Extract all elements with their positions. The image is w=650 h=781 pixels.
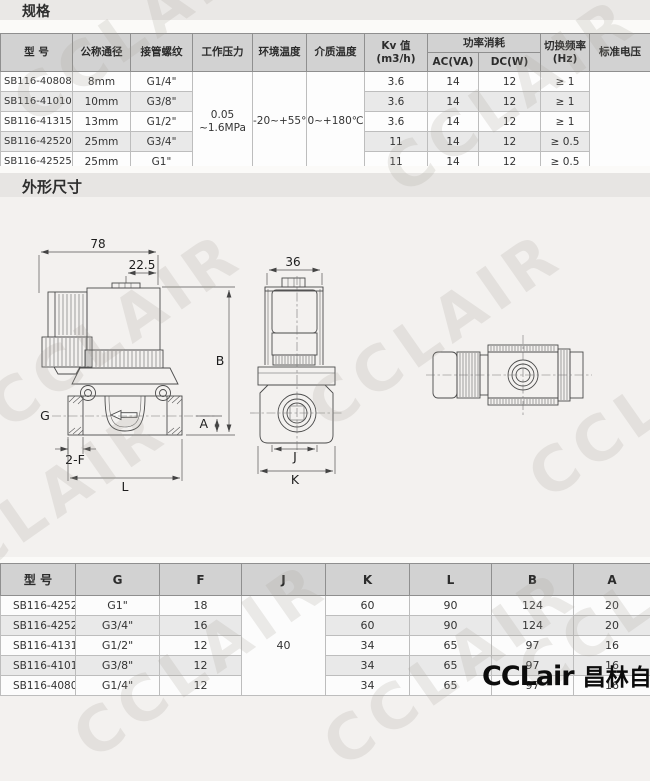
cell-kv: 3.6 (365, 92, 428, 112)
cell-diameter: 25mm (73, 132, 131, 152)
dimension-drawing: 78 22.5 B A G 2-F L (0, 197, 650, 557)
cell-model: SB116-42520 (1, 616, 76, 636)
pressure-value-line2: ~1.6MPa (193, 122, 252, 134)
cell-G: G1" (76, 596, 160, 616)
dim-label-J: J (292, 449, 297, 464)
cell-thread: G1/4" (131, 72, 193, 92)
cell-J-merged: 40 (242, 596, 326, 696)
cell-freq: ≥ 1 (541, 112, 590, 132)
cell-media-temp: 0~+180℃ (307, 72, 365, 172)
cell-K: 60 (326, 596, 410, 616)
top-view-drawing (426, 335, 592, 417)
cell-A: 16 (574, 636, 650, 656)
brand-logo-cjk: 昌林自动化 (583, 665, 650, 691)
dim-label-K: K (291, 472, 300, 487)
col-header-media-temp: 介质温度 (307, 34, 365, 72)
cell-model: SB116-42525 (1, 596, 76, 616)
section-title-specs: 规格 (22, 1, 50, 21)
cell-ambient-temp: -20~+55℃ (253, 72, 307, 172)
cell-model: SB116-41010 (1, 92, 73, 112)
cell-F: 18 (160, 596, 242, 616)
cell-kv: 3.6 (365, 112, 428, 132)
side-view-drawing (42, 283, 215, 435)
col-header-K: K (326, 564, 410, 596)
col-header-A: A (574, 564, 650, 596)
kv-label: Kv 值 (365, 40, 427, 52)
col-header-thread: 接管螺纹 (131, 34, 193, 72)
col-header-ambient-temp: 环境温度 (253, 34, 307, 72)
col-header-frequency: 切换频率 (Hz) (541, 34, 590, 72)
dim-label-36: 36 (285, 255, 300, 269)
cell-ac: 14 (428, 132, 479, 152)
cell-diameter: 13mm (73, 112, 131, 132)
col-header-pressure: 工作压力 (193, 34, 253, 72)
cell-dc: 12 (479, 112, 541, 132)
col-header-model: 型 号 (1, 34, 73, 72)
divider (0, 20, 650, 33)
cell-model: SB116-40808 (1, 676, 76, 696)
cell-model: SB116-40808 (1, 72, 73, 92)
table-row: SB116-42525 G1" 18 40 60 90 124 20 (1, 596, 650, 616)
col-header-voltage: 标准电压 (590, 34, 650, 72)
cell-ac: 14 (428, 72, 479, 92)
cell-G: G1/2" (76, 636, 160, 656)
col-header-B: B (492, 564, 574, 596)
col-header-power: 功率消耗 (428, 34, 541, 53)
pressure-value-line1: 0.05 (193, 109, 252, 121)
cell-A: 20 (574, 596, 650, 616)
cell-kv: 11 (365, 132, 428, 152)
cell-A: 20 (574, 616, 650, 636)
col-header-ac: AC(VA) (428, 53, 479, 72)
cell-K: 34 (326, 656, 410, 676)
cell-dc: 12 (479, 72, 541, 92)
cell-L: 90 (410, 596, 492, 616)
cell-diameter: 8mm (73, 72, 131, 92)
cell-pressure: 0.05 ~1.6MPa (193, 72, 253, 172)
cell-B: 97 (492, 636, 574, 656)
col-header-model: 型 号 (1, 564, 76, 596)
brand-logo-latin: CCLair (482, 661, 574, 692)
cell-K: 60 (326, 616, 410, 636)
cell-G: G1/4" (76, 676, 160, 696)
cell-dc: 12 (479, 92, 541, 112)
col-header-dc: DC(W) (479, 53, 541, 72)
dim-label-A: A (199, 416, 208, 431)
col-header-J: J (242, 564, 326, 596)
cell-B: 124 (492, 596, 574, 616)
cell-G: G3/8" (76, 656, 160, 676)
cell-ac: 14 (428, 92, 479, 112)
cell-K: 34 (326, 636, 410, 656)
cell-dc: 12 (479, 132, 541, 152)
col-header-kv: Kv 值 (m3/h) (365, 34, 428, 72)
cell-voltage-empty (590, 72, 650, 172)
freq-unit: (Hz) (541, 53, 589, 65)
cell-diameter: 10mm (73, 92, 131, 112)
cell-L: 90 (410, 616, 492, 636)
dim-label-L: L (122, 479, 129, 494)
divider (0, 166, 650, 173)
section-title-dimensions: 外形尺寸 (22, 176, 82, 197)
table-row: SB116-41315 G1/2" 12 34 65 97 16 (1, 636, 650, 656)
cell-B: 124 (492, 616, 574, 636)
cell-thread: G3/4" (131, 132, 193, 152)
dim-label-22-5: 22.5 (129, 258, 156, 272)
cell-model: SB116-42520 (1, 132, 73, 152)
cell-L: 65 (410, 656, 492, 676)
cell-kv: 3.6 (365, 72, 428, 92)
cell-thread: G1/2" (131, 112, 193, 132)
dim-label-78: 78 (90, 237, 105, 251)
cell-K: 34 (326, 676, 410, 696)
col-header-L: L (410, 564, 492, 596)
section-bar-specs: 规格 (0, 0, 650, 20)
cell-freq: ≥ 1 (541, 72, 590, 92)
col-header-G: G (76, 564, 160, 596)
col-header-F: F (160, 564, 242, 596)
cell-freq: ≥ 0.5 (541, 132, 590, 152)
table-row: SB116-42520 G3/4" 16 60 90 124 20 (1, 616, 650, 636)
cell-F: 12 (160, 676, 242, 696)
kv-unit: (m3/h) (365, 53, 427, 65)
brand-logo: CCLair 昌林自动化 (482, 658, 650, 692)
cell-model: SB116-41315 (1, 636, 76, 656)
freq-label: 切换频率 (541, 40, 589, 52)
spec-table: 型 号 公称通径 接管螺纹 工作压力 环境温度 介质温度 Kv 值 (m3/h)… (0, 33, 650, 172)
cell-model: SB116-41010 (1, 656, 76, 676)
cell-thread: G3/8" (131, 92, 193, 112)
cell-model: SB116-41315 (1, 112, 73, 132)
dim-label-G: G (40, 408, 50, 423)
dim-label-B: B (216, 353, 225, 368)
cell-L: 65 (410, 636, 492, 656)
table-row: SB116-40808 8mm G1/4" 0.05 ~1.6MPa -20~+… (1, 72, 650, 92)
cell-L: 65 (410, 676, 492, 696)
cell-freq: ≥ 1 (541, 92, 590, 112)
front-view-drawing (250, 276, 344, 453)
section-bar-dimensions: 外形尺寸 (0, 173, 650, 197)
cell-F: 12 (160, 636, 242, 656)
cell-F: 12 (160, 656, 242, 676)
cell-ac: 14 (428, 112, 479, 132)
col-header-diameter: 公称通径 (73, 34, 131, 72)
cell-G: G3/4" (76, 616, 160, 636)
side-view-dimensions: 78 22.5 B A G 2-F L (39, 237, 235, 494)
cell-F: 16 (160, 616, 242, 636)
